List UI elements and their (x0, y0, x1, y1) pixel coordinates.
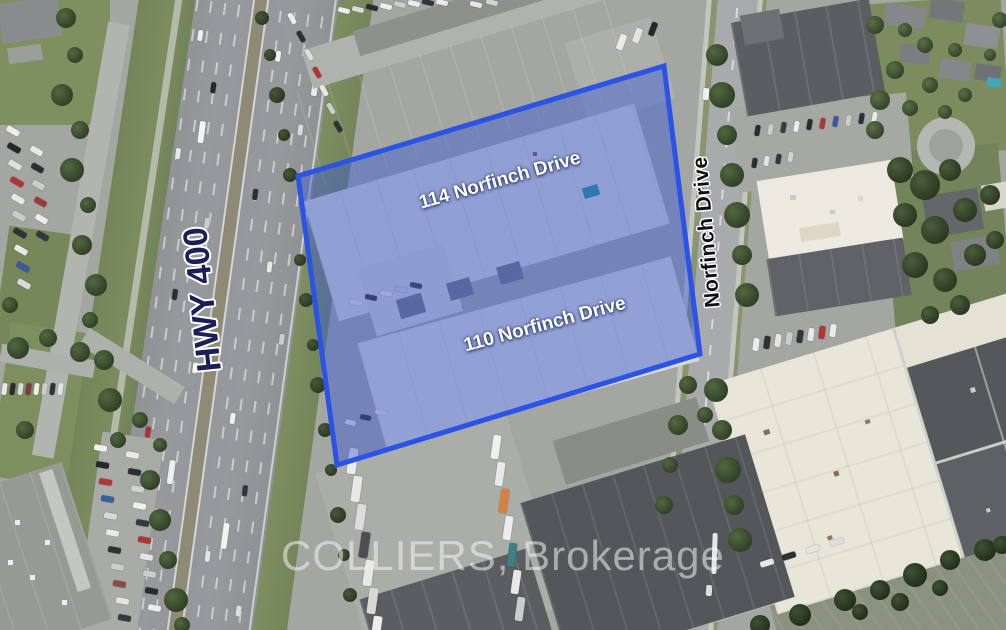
tree (717, 125, 737, 145)
car (242, 485, 248, 497)
car (32, 179, 46, 191)
tree (984, 49, 996, 61)
tree (149, 509, 171, 531)
tree (958, 88, 972, 102)
tree (283, 168, 297, 182)
tree (72, 235, 92, 255)
tree (940, 550, 960, 570)
tree (724, 495, 744, 515)
tree (140, 470, 160, 490)
tree (269, 87, 285, 103)
tree (655, 496, 673, 514)
house-roof (939, 58, 971, 82)
car (31, 162, 45, 174)
tree (60, 158, 84, 182)
car (197, 30, 203, 42)
car (29, 145, 43, 157)
tree (174, 617, 190, 630)
car (175, 148, 181, 160)
tree (264, 49, 276, 61)
tree (789, 604, 811, 626)
tree (870, 580, 890, 600)
tree (939, 159, 961, 181)
car (279, 334, 285, 346)
tree (16, 421, 34, 439)
tree (852, 604, 868, 620)
tree (255, 11, 269, 25)
tree (922, 77, 938, 93)
tree (110, 432, 126, 448)
tree (712, 420, 732, 440)
tree (964, 244, 986, 266)
tree (903, 563, 927, 587)
tree (668, 415, 688, 435)
tree (704, 378, 728, 402)
tree (886, 61, 904, 79)
tree (948, 43, 962, 57)
tree (910, 170, 940, 200)
car (829, 324, 837, 338)
tree (887, 157, 913, 183)
tree (893, 203, 917, 227)
car (9, 176, 24, 188)
tree (51, 84, 73, 106)
tree (343, 588, 357, 602)
car (34, 213, 48, 225)
car (297, 124, 303, 136)
tree (980, 185, 1000, 205)
roof-vent (62, 600, 67, 605)
tree (732, 245, 752, 265)
tree (953, 198, 977, 222)
tree (82, 312, 98, 328)
car (33, 196, 47, 208)
car (752, 338, 760, 352)
tree (330, 507, 346, 523)
tree (724, 202, 750, 228)
tree (325, 464, 337, 476)
roof-vent (30, 575, 35, 580)
car (5, 125, 20, 137)
car (763, 336, 771, 350)
car (229, 413, 235, 425)
tree (299, 293, 313, 307)
tree (94, 350, 114, 370)
tree (866, 121, 884, 139)
tree (932, 580, 948, 596)
swimming-pool (986, 77, 1001, 88)
tree (307, 339, 319, 351)
tree (902, 100, 918, 116)
tree (7, 337, 29, 359)
tree (294, 254, 306, 266)
car (8, 159, 23, 171)
tree (679, 376, 697, 394)
car (394, 1, 407, 9)
tree (164, 588, 188, 612)
tree (898, 23, 912, 37)
tree (950, 295, 970, 315)
tree (735, 283, 759, 307)
tree (921, 306, 939, 324)
roof-vent (15, 520, 20, 525)
satellite-map: 114 Norfinch Drive 110 Norfinch Drive No… (0, 0, 1006, 630)
roof-vent (790, 195, 796, 200)
car (785, 332, 793, 346)
tree (98, 388, 122, 412)
roof-vent (45, 540, 50, 545)
car (220, 523, 229, 550)
tree (715, 457, 741, 483)
tree (278, 129, 290, 141)
tree (750, 615, 770, 630)
tree (986, 231, 1004, 249)
tree (39, 329, 57, 347)
car (380, 2, 393, 10)
tree (902, 252, 928, 278)
car (408, 0, 421, 7)
car (172, 289, 178, 301)
car (7, 142, 22, 154)
tree (917, 37, 933, 53)
tree (993, 536, 1006, 554)
tree (938, 105, 952, 119)
tree (662, 457, 678, 473)
tree (720, 163, 744, 187)
roof-vent (8, 560, 13, 565)
car (818, 326, 826, 340)
car (796, 330, 804, 344)
tree (159, 551, 177, 569)
tree (80, 197, 96, 213)
tree (318, 423, 332, 437)
car (422, 0, 435, 6)
tree (132, 412, 148, 428)
car (252, 189, 258, 201)
tree (56, 8, 76, 28)
tree (866, 16, 884, 34)
tree (728, 528, 752, 552)
car (10, 193, 25, 205)
tree (933, 268, 957, 292)
car (774, 334, 782, 348)
tree (706, 44, 728, 66)
tree (697, 407, 713, 423)
car (204, 551, 210, 563)
tree (85, 274, 107, 296)
tree (891, 593, 909, 611)
tree (310, 377, 326, 393)
tree (153, 438, 167, 452)
tree (2, 297, 18, 313)
car (210, 82, 216, 94)
tree (992, 12, 1006, 28)
paved-circle-inner (929, 129, 963, 163)
car (807, 328, 815, 342)
roof-vent (858, 196, 863, 201)
tree (921, 216, 949, 244)
tree (67, 47, 83, 63)
roof-vent (830, 210, 835, 214)
car (11, 210, 26, 222)
brokerage-watermark: COLLIERS, Brokerage (281, 532, 725, 580)
car (706, 585, 713, 596)
tree (71, 121, 89, 139)
tree (70, 342, 90, 362)
car (275, 50, 281, 62)
tree (709, 82, 735, 108)
tree (870, 90, 890, 110)
